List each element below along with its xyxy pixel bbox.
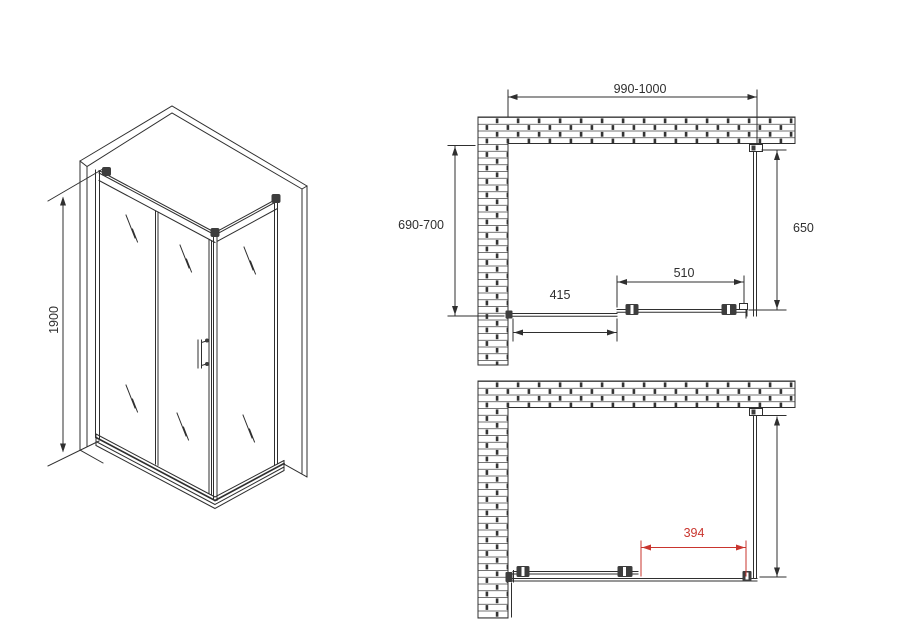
iso-corner-cap-left	[102, 167, 111, 176]
isometric-view: 1900	[47, 106, 307, 509]
dim-depth-label: 690-700	[398, 218, 444, 232]
dim-side-unlabeled	[760, 416, 786, 578]
track-open	[508, 571, 757, 617]
dim-fixed-panel: 415	[513, 288, 617, 341]
iso-door-handle	[198, 339, 209, 369]
dim-opening: 394	[641, 526, 746, 576]
dim-fixed-panel-label: 415	[550, 288, 571, 302]
brick-wall-closed	[478, 117, 795, 365]
side-panel-open	[750, 409, 763, 579]
plan-view-open: 394	[478, 381, 795, 618]
iso-glass-marks	[126, 215, 256, 442]
technical-drawing: 1900	[0, 0, 900, 636]
fixed-panel-closed	[506, 311, 618, 319]
brick-wall-open	[478, 381, 795, 618]
dim-width-label: 990-1000	[614, 82, 667, 96]
iso-corner-cap-front	[211, 228, 220, 237]
dim-height-label: 1900	[47, 306, 61, 334]
sliding-door-closed	[617, 304, 748, 319]
iso-enclosure-frame	[96, 167, 281, 501]
dim-height: 1900	[47, 170, 102, 467]
side-panel-closed	[750, 145, 763, 317]
sliding-door-open	[506, 566, 639, 582]
dim-door-label: 510	[674, 266, 695, 280]
dim-side-panel-label: 650	[793, 221, 814, 235]
plan-view-closed: 990-1000 690-700 650 510 415	[398, 82, 814, 365]
iso-corner-walls	[80, 106, 307, 477]
iso-bottom-rail	[96, 434, 284, 509]
dim-door: 510	[617, 266, 744, 307]
drawing-canvas: 1900	[0, 0, 900, 636]
dim-side-panel: 650	[749, 150, 814, 310]
iso-corner-cap-side	[272, 194, 281, 203]
dim-opening-label: 394	[684, 526, 705, 540]
